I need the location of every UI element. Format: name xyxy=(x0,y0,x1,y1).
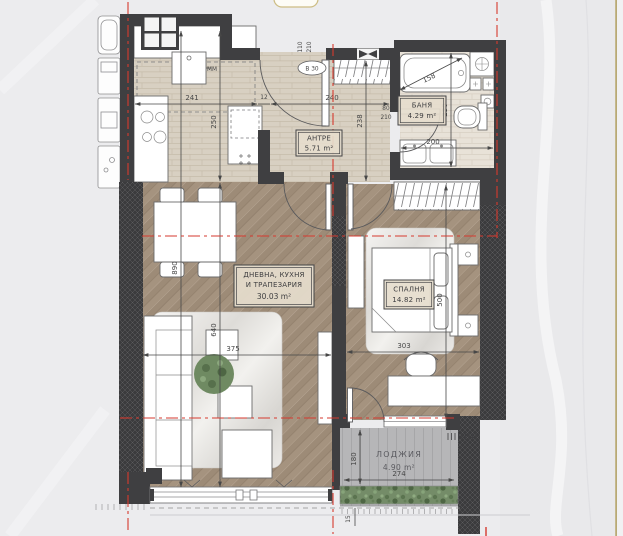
dim-bathdoor-height: 210 xyxy=(380,115,391,121)
wall-right-connector xyxy=(480,178,506,205)
floor-plan-svg: 241 12 240 250 640 890 238 375 303 500 1… xyxy=(0,0,623,536)
faucet xyxy=(440,145,443,148)
shaft-window xyxy=(141,14,179,50)
loggia-name: ЛОДЖИЯ xyxy=(376,450,422,459)
bedroom-area: 14.82 m² xyxy=(392,296,426,304)
wall-corner-block xyxy=(119,472,150,504)
dining-chair xyxy=(198,188,222,203)
bath-name: БАНЯ xyxy=(412,102,433,110)
neighbor-fixtures xyxy=(98,16,120,188)
kitchen-appliance xyxy=(172,52,206,84)
bedroom-dresser xyxy=(348,236,364,308)
dim-living-depth: 640 xyxy=(210,323,218,336)
bedroom-label: СПАЛНЯ 14.82 m² xyxy=(384,280,434,309)
wall-left-hatched xyxy=(119,182,143,472)
dim-bathdoor-width: 80 xyxy=(382,106,390,112)
toilet xyxy=(454,103,487,130)
entry-door-badge-text: В 30 xyxy=(305,67,319,73)
vent-symbol xyxy=(357,49,379,60)
wall-hall-bottom-left xyxy=(258,172,284,184)
dining-table xyxy=(154,202,236,262)
floor-plan-page: 241 12 240 250 640 890 238 375 303 500 1… xyxy=(0,0,623,536)
entry-door-badge: В 30 xyxy=(298,61,326,75)
living-label: ДНЕВНА, КУХНЯ И ТРАПЕЗАРИЯ 30.03 m² xyxy=(234,265,314,307)
bath-label: БАНЯ 4.29 m² xyxy=(398,96,446,125)
dim-partition: 12 xyxy=(260,95,268,101)
wall-corner-step xyxy=(146,468,162,484)
background-right-sliver xyxy=(617,0,623,536)
cropped-gold-badge xyxy=(274,0,318,7)
plant xyxy=(194,354,234,394)
dim-loggia-depth: 180 xyxy=(350,452,358,465)
hall-label: АНТРЕ 5.71 m² xyxy=(296,130,342,156)
wall-partition-hatched xyxy=(332,216,346,286)
wall-bath-top xyxy=(394,40,506,52)
living-name-line1: ДНЕВНА, КУХНЯ xyxy=(243,271,304,279)
ottoman xyxy=(222,430,272,478)
dim-hall-depth: 238 xyxy=(356,114,364,127)
dim-bedroom-depth: 500 xyxy=(436,293,444,306)
dining-chair xyxy=(198,262,222,277)
loggia-area: 4.90 m² xyxy=(383,463,415,472)
bedroom-name: СПАЛНЯ xyxy=(393,286,425,294)
dim-bedroom-width: 303 xyxy=(397,342,410,350)
wall-loggia-pier xyxy=(446,414,460,430)
sofa xyxy=(144,316,192,480)
wall-right-hatched xyxy=(480,205,506,420)
appliance-label: ММ xyxy=(207,67,217,73)
dim-kitchen-depth: 250 xyxy=(210,115,218,128)
kitchen-island xyxy=(228,106,262,165)
nightstand xyxy=(458,244,478,265)
living-name-line2: И ТРАПЕЗАРИЯ xyxy=(246,281,302,289)
bedroom-wardrobe xyxy=(394,182,480,210)
dim-entry-height: 210 xyxy=(307,41,313,52)
dim-bath-width: 200 xyxy=(426,138,439,146)
dim-entry-width: 110 xyxy=(298,41,304,52)
tv-bench xyxy=(318,332,332,424)
dining-chair xyxy=(160,188,184,203)
dim-kitchen-width: 241 xyxy=(185,94,198,102)
bath-area: 4.29 m² xyxy=(408,112,437,120)
nightstand xyxy=(458,315,478,336)
wall-hall-top-left xyxy=(232,48,260,60)
desk xyxy=(388,376,480,406)
faucet xyxy=(413,145,416,148)
living-area: 30.03 m² xyxy=(257,292,291,301)
hall-name: АНТРЕ xyxy=(307,135,331,143)
desk-chair xyxy=(406,354,436,376)
dim-hall-width: 240 xyxy=(325,94,338,102)
wall-step xyxy=(220,14,232,60)
wall-left-upper xyxy=(120,26,134,182)
loggia-planter xyxy=(340,486,458,504)
loggia-hatch-ticks xyxy=(342,509,452,514)
dim-total-depth: 890 xyxy=(171,261,179,274)
wall-right-upper xyxy=(494,52,506,178)
dim-living-width: 375 xyxy=(226,345,239,353)
dim-parapet: 15 xyxy=(346,515,352,523)
gold-border-line xyxy=(615,0,617,536)
hall-area: 5.71 m² xyxy=(305,145,334,153)
kitchen-stove xyxy=(134,96,168,182)
